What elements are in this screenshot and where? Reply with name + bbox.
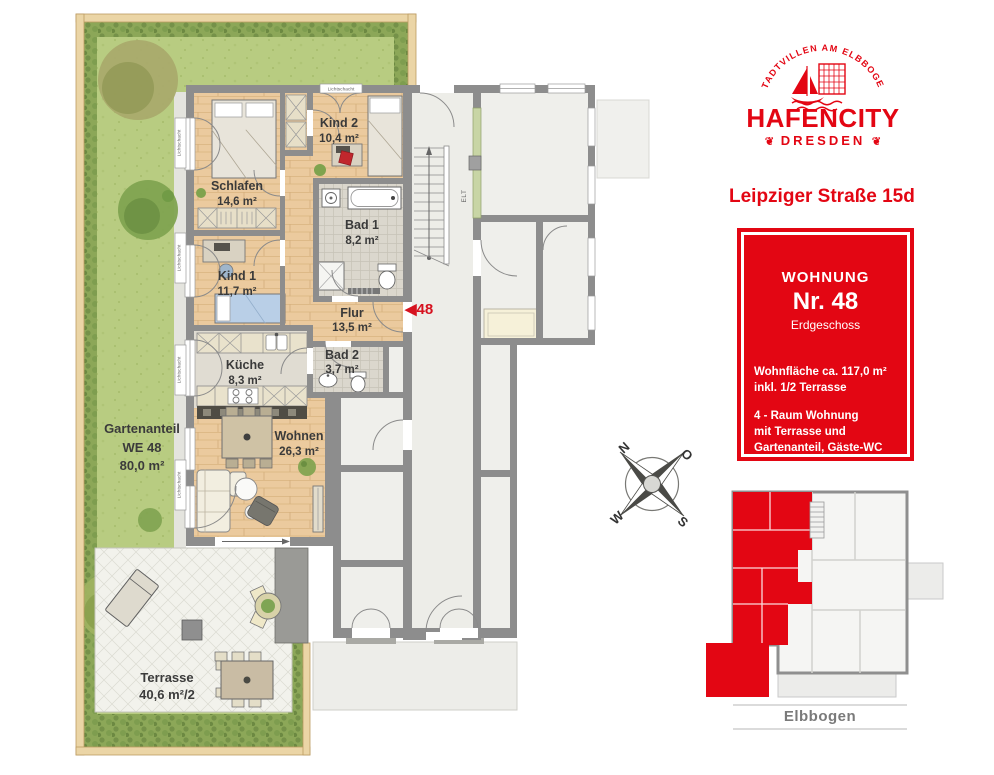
coffee-table: [235, 478, 257, 500]
bathtub: [348, 187, 401, 209]
lichtschacht-label: Lichtschacht: [177, 471, 183, 498]
overview-terrace-48: [706, 643, 769, 697]
ornament-left-icon: ❦: [765, 136, 774, 148]
street-address: Leipziger Straße 15d: [729, 186, 939, 208]
toilet: [378, 264, 396, 289]
neighbor-corner-block: [275, 548, 308, 643]
unit-48-marker: ◀48: [404, 301, 433, 318]
label-kueche: Küche: [226, 358, 264, 372]
apartment-number: Nr. 48: [744, 288, 907, 316]
garden-label-area: 80,0 m²: [120, 458, 165, 473]
brand-name: HAFENCITY: [718, 103, 928, 134]
svg-text:11,7 m²: 11,7 m²: [218, 286, 257, 298]
garden-label-unit: WE 48: [122, 440, 161, 455]
terrace-label-name: Terrasse: [140, 670, 193, 685]
label-kind1: Kind 1: [218, 269, 256, 283]
compass-east: O: [678, 446, 696, 464]
wardrobe: [198, 208, 276, 228]
shower: [318, 262, 344, 290]
svg-text:10,4 m²: 10,4 m²: [319, 133, 359, 145]
kitchen-counter-stove: [197, 386, 307, 406]
svg-text:26,3 m²: 26,3 m²: [279, 446, 319, 458]
terrace-label-area: 40,6 m²/2: [139, 687, 195, 702]
compass-north: N: [615, 439, 632, 456]
type-line-1: 4 - Raum Wohnung: [754, 408, 907, 424]
kid1-bed: [215, 294, 285, 323]
type-line-2: mit Terrasse und: [754, 424, 907, 440]
pillar: [182, 620, 202, 640]
stairwell-floor: [412, 93, 473, 632]
logo-building-icon: [819, 64, 845, 94]
area-line-2: inkl. 1/2 Terrasse: [754, 380, 907, 396]
overview-stairs: [810, 502, 824, 538]
plant-icon: [298, 458, 316, 476]
label-bad1: Bad 1: [345, 218, 379, 232]
tree: [118, 180, 178, 240]
sideboard: [313, 486, 323, 532]
lichtschacht-label: Lichtschacht: [328, 87, 355, 93]
area-info: Wohnfläche ca. 117,0 m² inkl. 1/2 Terras…: [754, 364, 907, 396]
label-wohnen: Wohnen: [274, 429, 323, 443]
neighbor-terrace-slab: [313, 642, 517, 710]
apartment-info-box-inner: WOHNUNG Nr. 48 Erdgeschoss Wohnfläche ca…: [744, 235, 907, 454]
double-bed: [212, 100, 276, 178]
garden-label-name: Gartenanteil: [104, 421, 180, 436]
plant-icon: [196, 188, 206, 198]
tree: [98, 40, 178, 120]
terrace: Terrasse 40,6 m²/2: [95, 548, 308, 712]
overview-map: Elbbogen: [706, 492, 943, 729]
brand-city: DRESDEN: [781, 133, 866, 148]
brand-city-line: ❦ DRESDEN ❦: [718, 133, 928, 148]
type-line-3: Gartenanteil, Gäste-WC: [754, 440, 907, 456]
apartment-info-box: WOHNUNG Nr. 48 Erdgeschoss Wohnfläche ca…: [737, 228, 914, 461]
window-bay: [484, 309, 538, 340]
apartment-floor: Erdgeschoss: [744, 318, 907, 332]
lichtschacht-label: Lichtschacht: [177, 356, 183, 383]
label-bad2: Bad 2: [325, 348, 359, 362]
area-line-1: Wohnfläche ca. 117,0 m²: [754, 364, 907, 380]
svg-text:3,7 m²: 3,7 m²: [325, 364, 358, 376]
label-kind2: Kind 2: [320, 116, 358, 130]
svg-text:13,5 m²: 13,5 m²: [332, 322, 372, 334]
washing-machine: [322, 189, 340, 207]
radiator: [348, 288, 380, 294]
label-schlafen: Schlafen: [211, 179, 263, 193]
floorplan-page: Gartenanteil WE 48 80,0 m²: [0, 0, 994, 775]
kitchen-counter-top: [197, 333, 307, 353]
svg-text:8,3 m²: 8,3 m²: [228, 375, 261, 387]
label-flur: Flur: [340, 306, 364, 320]
lichtschacht-label: Lichtschacht: [177, 129, 183, 156]
flur-corridor: [285, 156, 313, 341]
plant-icon: [314, 164, 326, 176]
info-box-title: WOHNUNG: [744, 269, 907, 286]
kid2-bed: [368, 96, 402, 176]
kid2-desk: [332, 144, 362, 166]
compass-south: S: [675, 513, 692, 530]
svg-text:8,2 m²: 8,2 m²: [345, 235, 378, 247]
elt-label: ELT: [461, 190, 468, 203]
svg-text:14,6 m²: 14,6 m²: [217, 196, 257, 208]
dining-table: [222, 407, 272, 468]
lichtschacht-label: Lichtschacht: [177, 244, 183, 271]
overview-district-label: Elbbogen: [784, 708, 856, 725]
compass-rose: N O W S: [607, 439, 695, 530]
ornament-right-icon: ❦: [872, 136, 881, 148]
type-info: 4 - Raum Wohnung mit Terrasse und Garten…: [754, 408, 907, 456]
